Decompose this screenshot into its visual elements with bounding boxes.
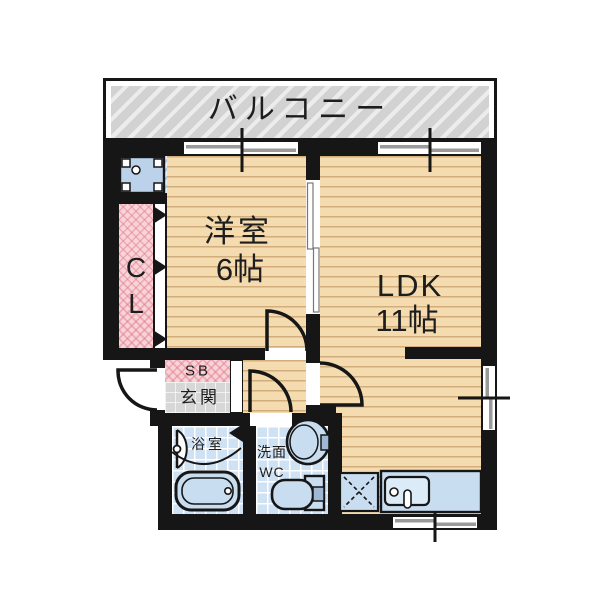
window-bottom [393,517,477,528]
balcony-label: バルコニー [208,93,392,128]
entrance-label: 玄関 [180,388,220,408]
closet-label: CL [126,250,146,322]
washroom-label: 洗面WC [257,442,287,482]
doorway-washroom [250,413,292,426]
wall-bath-divider [243,426,256,514]
washing-machine-area [119,156,167,194]
wall-under-pan [110,193,167,204]
shoe-box-label: SB [185,362,211,379]
wall-closet-bottom [103,348,266,360]
wall-ldk-stub [405,347,481,359]
doorway-western-room [265,348,306,360]
wall-bathroom-left [158,426,172,514]
floor-plan: バルコニー 洋室 6帖 LDK 11帖 CL SB 玄関 浴室 洗面WC [0,0,600,600]
wall-right [481,140,497,530]
western-room-size: 6帖 [216,252,264,288]
closet-door-track [153,204,167,348]
entrance-step [230,360,243,413]
wall-washroom-right [328,426,342,514]
wall-washroom-top [150,413,342,426]
bathroom-label: 浴室 [191,436,225,452]
western-room-label: 洋室 [204,214,272,250]
hallway [243,360,306,413]
doorway-entrance [150,368,165,410]
window-top-right [378,142,481,154]
window-top-left [184,142,298,154]
doorway-ldk [306,363,320,405]
wall-left [103,140,119,360]
ldk-label: LDK [377,268,443,304]
doorway-sliding-partition [306,180,320,314]
window-right [483,366,495,430]
ldk-size: 11帖 [375,303,438,339]
